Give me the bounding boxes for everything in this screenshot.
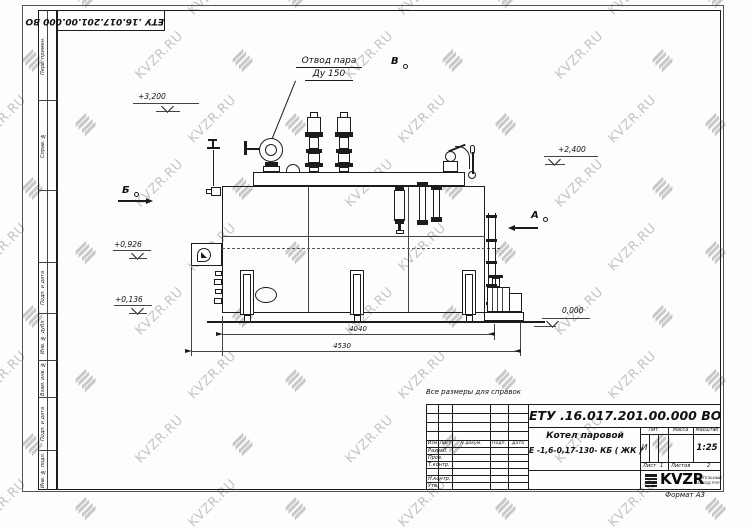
margin-label: Подп. и дата <box>38 397 48 450</box>
kvzr-logo-watermark <box>283 491 313 521</box>
kvzr-logo-icon <box>645 473 658 488</box>
mass-label: Масса <box>668 428 693 433</box>
col-list: Лист <box>438 441 453 446</box>
ground-line <box>207 321 545 323</box>
top-stamp-number: ЕТУ .16.017.201.00.000 ВО <box>58 11 164 30</box>
sheets-label: Листов <box>671 463 690 469</box>
steam-header <box>253 172 465 186</box>
row-ncontrol: Н.контр. <box>428 476 450 482</box>
kvzr-logo-sub2: ЗАВОД РЭП <box>697 480 720 485</box>
sheet-value: 1 <box>660 463 663 469</box>
kvzr-logo-watermark <box>493 491 523 521</box>
row-approved: Утв. <box>428 483 439 489</box>
row-developed: Разраб. <box>428 448 448 454</box>
product-designation: Е -1,6-0,17-130- КБ ( ЖК ) <box>529 446 641 455</box>
col-sign: Подп. <box>490 441 508 446</box>
margin-label: Справ. № <box>38 100 48 190</box>
lit-value: И <box>640 434 649 462</box>
format-label: Формат А3 <box>650 491 720 499</box>
margin-label: Инв. № дубл. <box>38 313 48 360</box>
scale-value: 1:25 <box>693 434 721 462</box>
product-name: Котел паровой <box>530 431 640 441</box>
scale-label: Масштаб <box>693 428 721 433</box>
row-tcontrol: Т.контр. <box>428 462 450 468</box>
col-doc: N докум. <box>452 441 490 446</box>
margin-label: Взам. инв. № <box>38 360 48 397</box>
kvzr-logo-watermark <box>73 491 103 521</box>
margin-label: Подп. и дата <box>38 262 48 313</box>
col-date: Дата <box>508 441 528 446</box>
margin-label: Инв. № подл. <box>38 450 48 490</box>
titleblock-doc-number: ЕТУ .16.017.201.00.000 ВО <box>529 404 720 427</box>
dimension-text: 4040 <box>336 325 380 333</box>
top-stamp-box: ЕТУ .16.017.201.00.000 ВО <box>57 10 165 31</box>
dome-fitting <box>286 164 300 172</box>
centerline <box>192 248 500 249</box>
manhole <box>255 287 277 303</box>
lit-label: Лит. <box>640 428 668 433</box>
row-checked: Пров. <box>428 455 443 461</box>
drawing-sheet: KVZR.RUKVZR.RUKVZR.RUKVZR.RUKVZR.RUKVZR.… <box>0 0 750 500</box>
sheet-label: Лист <box>643 463 656 469</box>
reference-note: Все размеры для справок <box>426 388 521 396</box>
sheets-value: 2 <box>707 463 710 469</box>
dimension-text: 4530 <box>320 342 364 350</box>
